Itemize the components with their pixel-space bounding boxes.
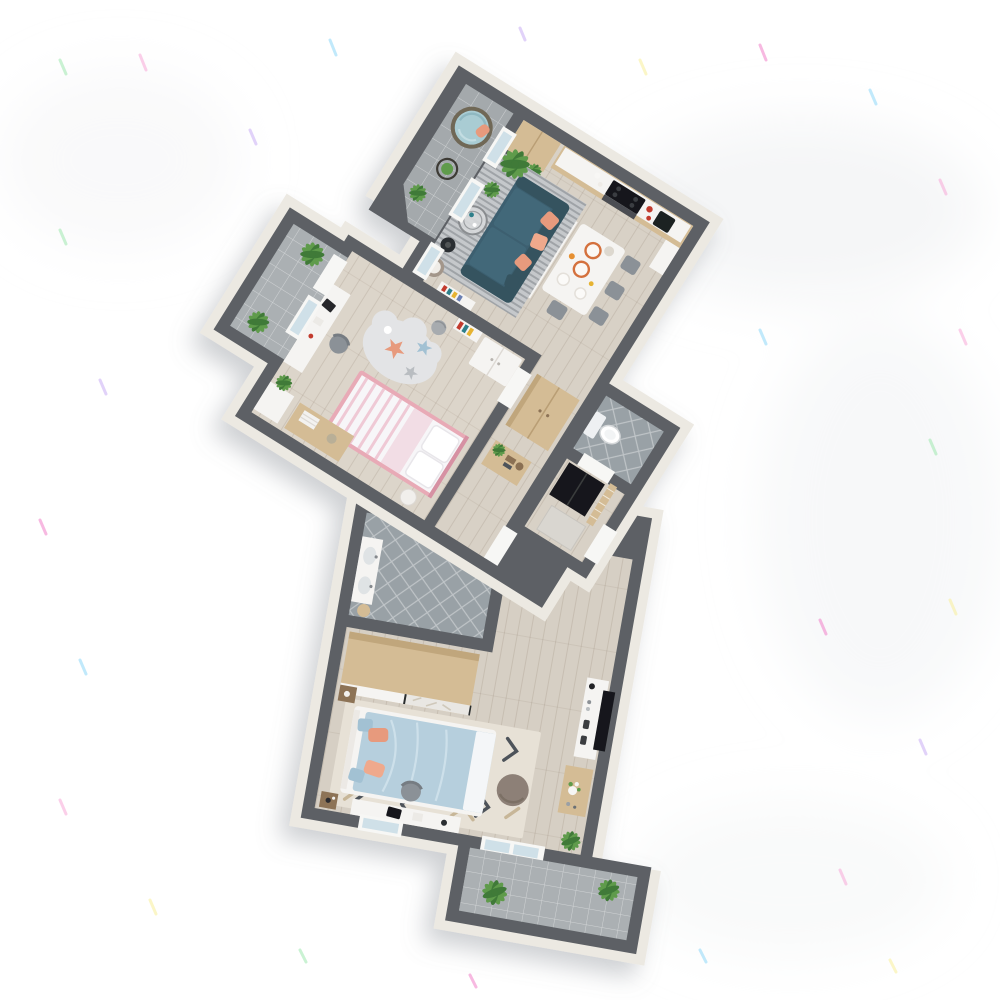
- nightstand: [338, 685, 358, 704]
- floor-plan-render: [0, 0, 1000, 1000]
- floor-plan-svg: [0, 0, 1000, 1000]
- nightstand: [319, 791, 339, 810]
